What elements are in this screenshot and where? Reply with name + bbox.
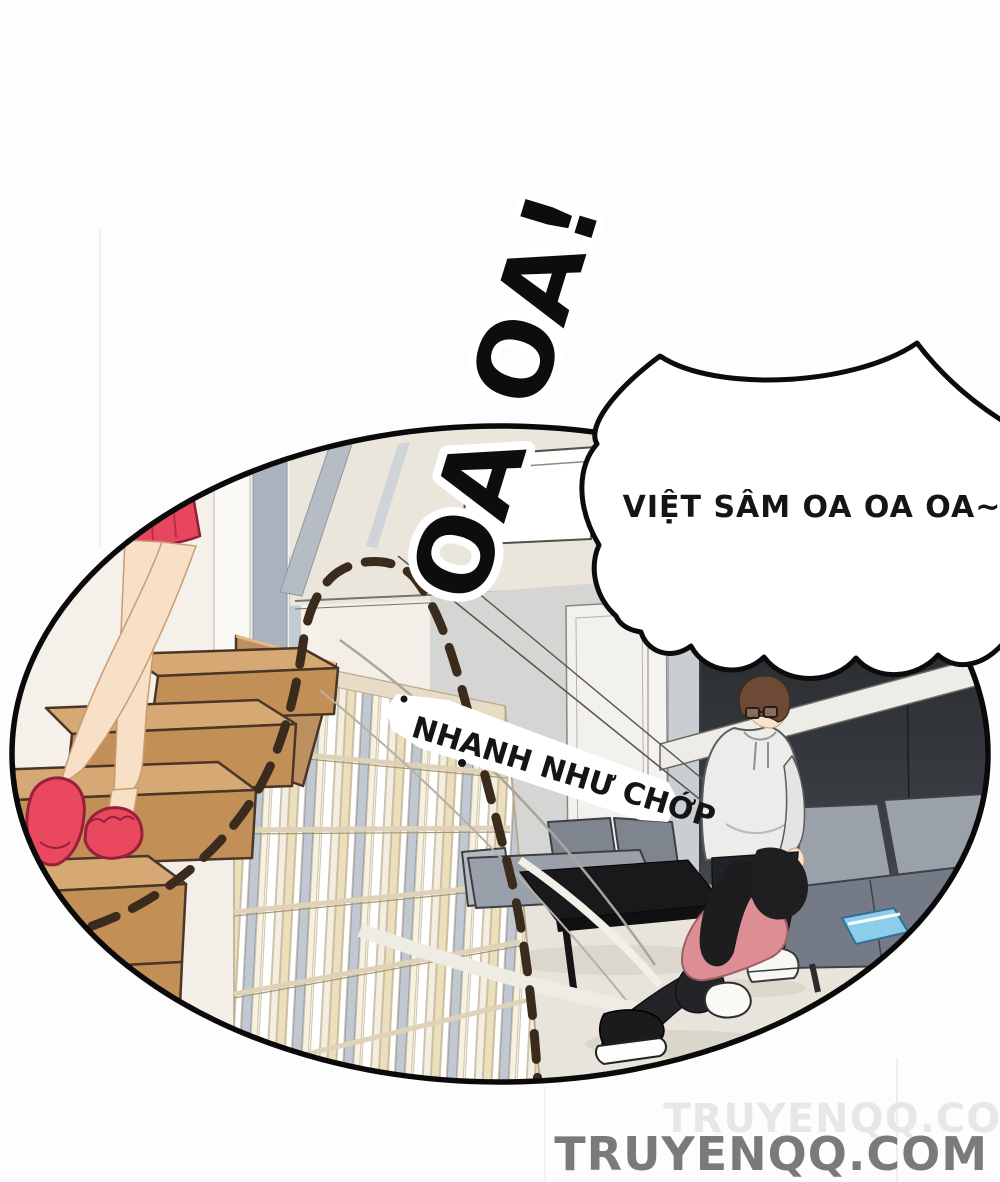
comic-artwork: NHANH NHƯ CHỚP VIỆT SÂM OA OA OA~ OA OA!… [0, 0, 1000, 1182]
speech-bubble: VIỆT SÂM OA OA OA~ [582, 343, 1000, 679]
girl-sneaker-white [705, 983, 751, 1018]
comic-page: NHANH NHƯ CHỚP VIỆT SÂM OA OA OA~ OA OA!… [0, 0, 1000, 1182]
speech-bubble-text: VIỆT SÂM OA OA OA~ [623, 488, 1000, 525]
red-skirt [112, 490, 200, 546]
watermark-text: TRUYENQQ.COM [554, 1127, 988, 1181]
